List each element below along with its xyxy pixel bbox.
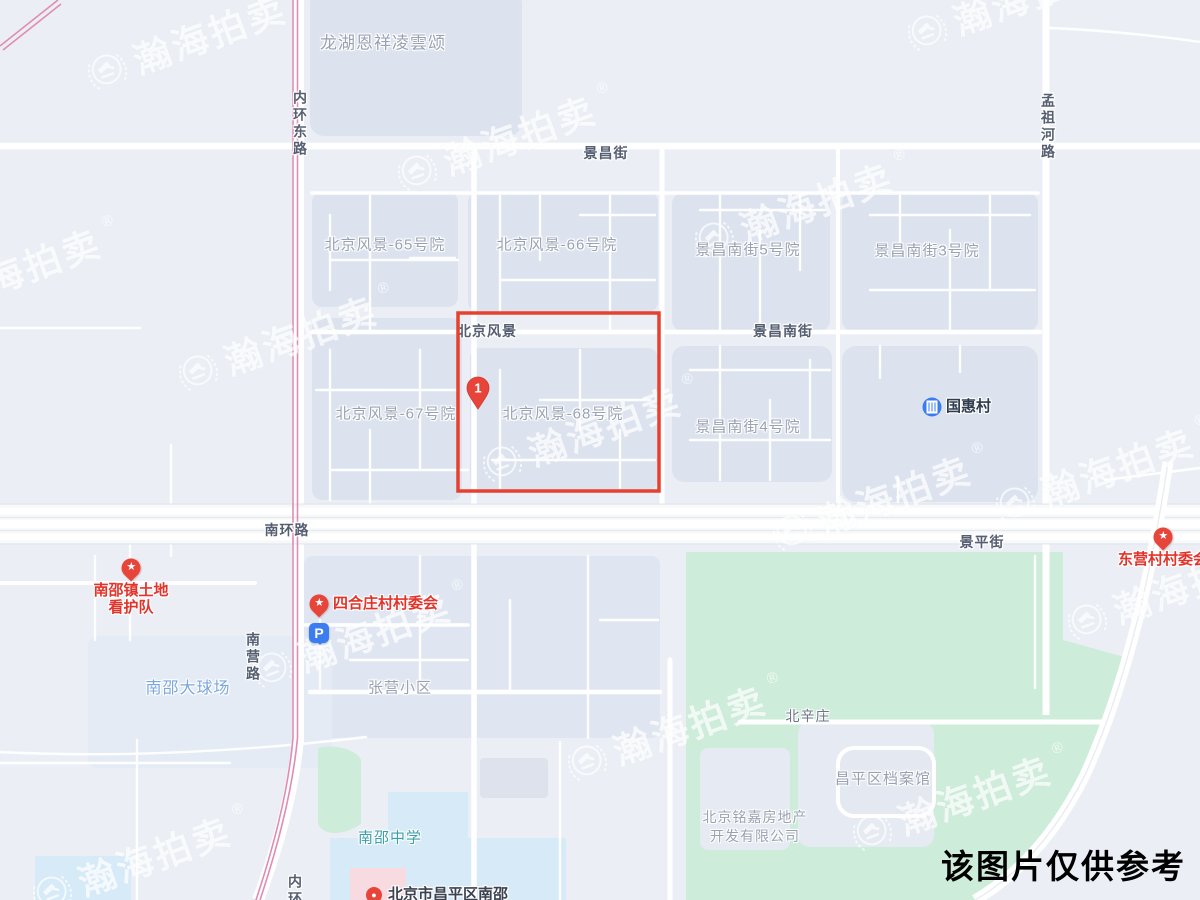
road-label-nanyinglu: 南营路 <box>243 632 263 683</box>
poi-guohuicun[interactable] <box>923 398 942 417</box>
area-label: 张营小区 <box>368 677 432 698</box>
map-canvas[interactable]: 瀚海拍卖®瀚海拍卖®瀚海拍卖®瀚海拍卖®瀚海拍卖®瀚海拍卖®瀚海拍卖®瀚海拍卖®… <box>0 0 1200 900</box>
area-label: 北京风景-68号院 <box>503 403 624 424</box>
poi-nanshao-town[interactable]: ● <box>366 887 382 900</box>
area-label: 龙湖恩祥凌雲颂 <box>320 29 446 54</box>
poi-sihezhuang-committee-label: 四合庄村村委会 <box>333 595 438 612</box>
road-label-nanhuanlu: 南环路 <box>265 520 310 540</box>
poi-nanshao-land-patrol-label: 南邵镇土地看护队 <box>93 582 168 616</box>
road-label-mengzuhelu: 孟祖河路 <box>1038 93 1058 161</box>
poi-guohuicun-label: 国惠村 <box>946 398 991 415</box>
poi-dongying-committee-label: 东营村村委会 <box>1118 551 1200 568</box>
parking-icon: P <box>309 623 329 643</box>
area-label: 北京风景-67号院 <box>336 403 457 424</box>
area-label: 北京铭嘉房地产 <box>703 807 808 827</box>
disclaimer-text: 该图片仅供参考 <box>941 840 1186 888</box>
area-label: 景昌南街4号院 <box>695 416 800 437</box>
area-label: 北京风景-65号院 <box>325 234 446 255</box>
poi-sihezhuang-committee[interactable]: ★ <box>310 595 329 614</box>
road-label-jingchangnanjie: 景昌南街 <box>753 321 813 341</box>
area-label: 昌平区档案馆 <box>835 768 931 789</box>
road-label-jingchangjie: 景昌街 <box>584 143 629 163</box>
pin-icon: ● <box>366 887 382 900</box>
road-label-jingpingjie: 景平街 <box>960 532 1005 552</box>
star-icon: ★ <box>306 591 333 618</box>
star-icon: ★ <box>1150 524 1177 551</box>
area-label: 北辛庄 <box>786 706 831 726</box>
poi-parking[interactable]: P <box>309 623 329 643</box>
area-label: 景昌南街5号院 <box>695 239 800 260</box>
poi-nanshao-town-label: 北京市昌平区南邵 <box>388 886 508 900</box>
poi-dongying-committee[interactable]: ★ <box>1154 528 1173 547</box>
area-label: 景昌南街3号院 <box>874 240 979 261</box>
label-layer: 龙湖恩祥凌雲颂北京风景-65号院北京风景-66号院景昌南街5号院景昌南街3号院北… <box>0 0 1200 900</box>
area-label: 南邵大球场 <box>145 674 230 698</box>
road-label-neihuandonglu: 内环东路 <box>290 90 310 158</box>
area-label: 南邵中学 <box>358 827 422 848</box>
area-label: 开发有限公司 <box>710 826 800 846</box>
poi-nanshao-land-patrol[interactable]: ★ <box>122 559 141 578</box>
building-icon <box>923 398 942 417</box>
area-label: 北京风景-66号院 <box>497 234 618 255</box>
road-label-beijingfengjing: 北京风景 <box>457 321 517 341</box>
road-label-neihuan-south: 内环 <box>285 874 305 900</box>
star-icon: ★ <box>118 555 145 582</box>
